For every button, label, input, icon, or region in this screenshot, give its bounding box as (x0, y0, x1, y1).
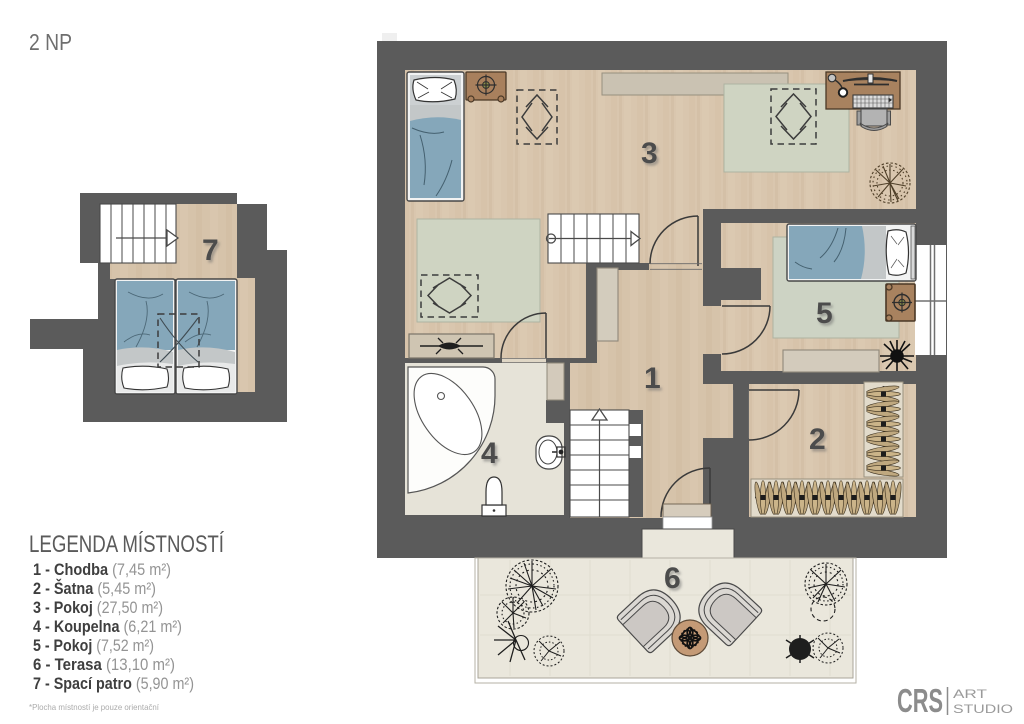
svg-text:2: 2 (809, 423, 826, 456)
svg-text:6 - Terasa (13,10 m²): 6 - Terasa (13,10 m²) (33, 656, 175, 674)
svg-text:5 - Pokoj (7,52 m²): 5 - Pokoj (7,52 m²) (33, 637, 154, 655)
svg-text:3: 3 (641, 137, 658, 170)
svg-text:*Plocha místností je pouze ori: *Plocha místností je pouze orientační (29, 702, 160, 712)
svg-text:4: 4 (481, 437, 498, 470)
svg-text:4 - Koupelna (6,21 m²): 4 - Koupelna (6,21 m²) (33, 618, 182, 636)
svg-text:2 - Šatna (5,45 m²): 2 - Šatna (5,45 m²) (33, 579, 156, 598)
svg-text:1 - Chodba (7,45 m²): 1 - Chodba (7,45 m²) (33, 561, 171, 579)
svg-text:1: 1 (644, 362, 661, 395)
svg-text:3 - Pokoj (27,50 m²): 3 - Pokoj (27,50 m²) (33, 599, 163, 617)
svg-text:7: 7 (202, 234, 219, 267)
svg-text:5: 5 (816, 297, 833, 330)
svg-text:6: 6 (664, 562, 681, 595)
svg-text:CRS: CRS (897, 682, 943, 719)
svg-text:LEGENDA MÍSTNOSTÍ: LEGENDA MÍSTNOSTÍ (29, 531, 224, 558)
svg-text:2 NP: 2 NP (29, 29, 72, 55)
svg-text:ART: ART (953, 687, 988, 701)
svg-text:STUDIO: STUDIO (953, 702, 1013, 716)
svg-text:7 - Spací patro (5,90 m²): 7 - Spací patro (5,90 m²) (33, 675, 194, 693)
